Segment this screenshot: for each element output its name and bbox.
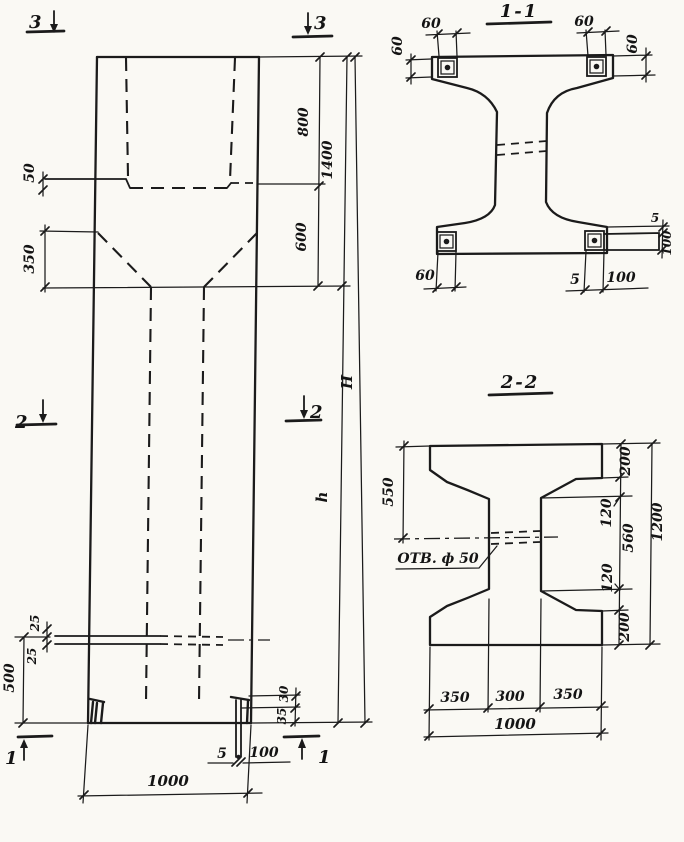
dim-label-100: 100 (660, 230, 674, 256)
dim-label-550: 550 (381, 477, 397, 506)
anchor-dot (445, 65, 451, 71)
dim-label-350: 350 (553, 687, 582, 703)
dim-label-100: 100 (606, 270, 635, 286)
drawing-canvas: 50 350 800 600 1400 h H 25 25 500 30 35 … (0, 0, 684, 842)
dim-label-h: h (313, 492, 331, 503)
dim-label-60: 60 (625, 34, 641, 54)
dim-label-100: 100 (249, 745, 278, 761)
dim-label-1000: 1000 (494, 715, 536, 733)
marker-bar (27, 31, 64, 32)
anchor-dot (444, 239, 450, 245)
dim-label-35: 35 (275, 708, 289, 725)
hole-label: ОТВ. ф 50 (397, 551, 478, 567)
section-title: 1-1 (500, 1, 539, 22)
dim-label-50: 50 (22, 163, 38, 183)
marker-bar (286, 420, 321, 421)
dim-label-200: 200 (617, 612, 633, 642)
dim-label-350: 350 (440, 690, 469, 706)
dim-label-H: H (338, 374, 356, 390)
marker-label: 1 (5, 748, 20, 769)
section-title: 2-2 (500, 372, 540, 393)
marker-label: 3 (29, 12, 44, 33)
marker-bar (293, 36, 332, 37)
dim-label-5: 5 (217, 746, 227, 762)
dim-label-5: 5 (651, 211, 659, 225)
dim-label-350: 350 (22, 244, 38, 273)
dim-label-25-lower: 25 (25, 648, 39, 666)
dim-label-600: 600 (294, 222, 310, 251)
marker-label: 3 (314, 13, 329, 34)
marker-label: 2 (14, 412, 30, 433)
dim-label-120: 120 (600, 563, 616, 592)
dim-label-120: 120 (599, 498, 615, 527)
shoe-right-leg (247, 701, 248, 723)
marker-bar (284, 736, 319, 737)
dim-label-1000: 1000 (147, 772, 189, 790)
dim-label-60: 60 (421, 16, 441, 32)
dim-label-800: 800 (296, 107, 312, 136)
marker-label: 1 (318, 747, 333, 768)
dim-label-1200: 1200 (650, 502, 666, 541)
marker-bar (18, 736, 52, 737)
dim-label-30: 30 (277, 685, 291, 702)
dim-label-60: 60 (574, 14, 594, 30)
dim-label-60: 60 (390, 36, 406, 56)
dim-label-300: 300 (495, 689, 524, 705)
dim-label-560: 560 (621, 523, 637, 552)
dim-label-200: 200 (618, 446, 634, 476)
dim-label-1400: 1400 (320, 140, 336, 179)
marker-bar (17, 424, 56, 425)
dim-label-500: 500 (2, 663, 18, 692)
dim-label-60: 60 (415, 268, 435, 284)
dim-label-5: 5 (570, 272, 580, 288)
drawing-sheet: 50 350 800 600 1400 h H 25 25 500 30 35 … (0, 0, 684, 842)
anchor-dot (592, 238, 598, 244)
dim-label-25-upper: 25 (28, 615, 42, 633)
anchor-dot (594, 64, 600, 70)
